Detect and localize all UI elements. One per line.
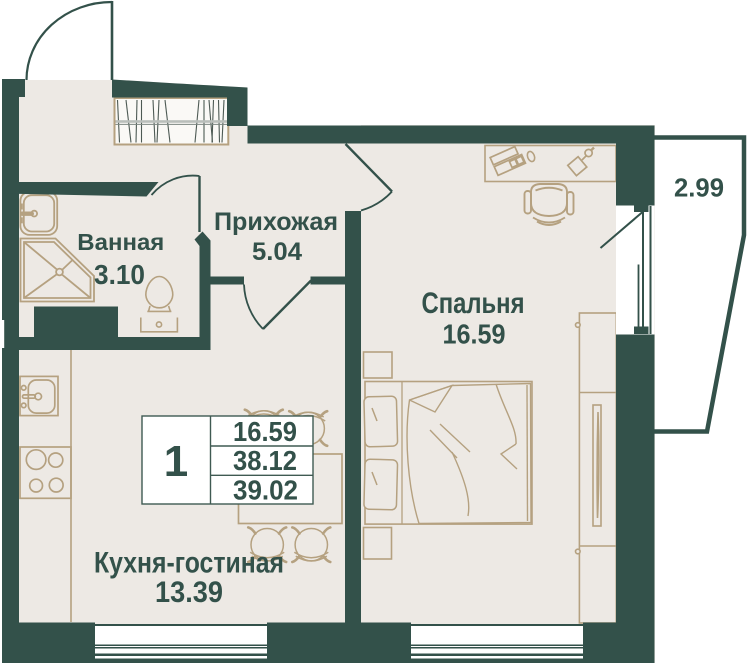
svg-text:5.04: 5.04: [252, 238, 302, 266]
svg-text:Кухня-гостиная: Кухня-гостиная: [94, 547, 284, 580]
svg-text:13.39: 13.39: [155, 576, 223, 609]
svg-text:Спальня: Спальня: [422, 287, 525, 320]
svg-text:Прихожая: Прихожая: [214, 208, 338, 236]
svg-text:3.10: 3.10: [94, 259, 145, 290]
svg-text:1: 1: [164, 437, 188, 486]
svg-text:2.99: 2.99: [674, 172, 724, 202]
svg-text:38.12: 38.12: [233, 445, 297, 476]
svg-text:39.02: 39.02: [233, 475, 298, 506]
svg-text:Ванная: Ванная: [77, 229, 164, 255]
svg-text:16.59: 16.59: [233, 416, 297, 447]
svg-text:16.59: 16.59: [443, 319, 506, 350]
